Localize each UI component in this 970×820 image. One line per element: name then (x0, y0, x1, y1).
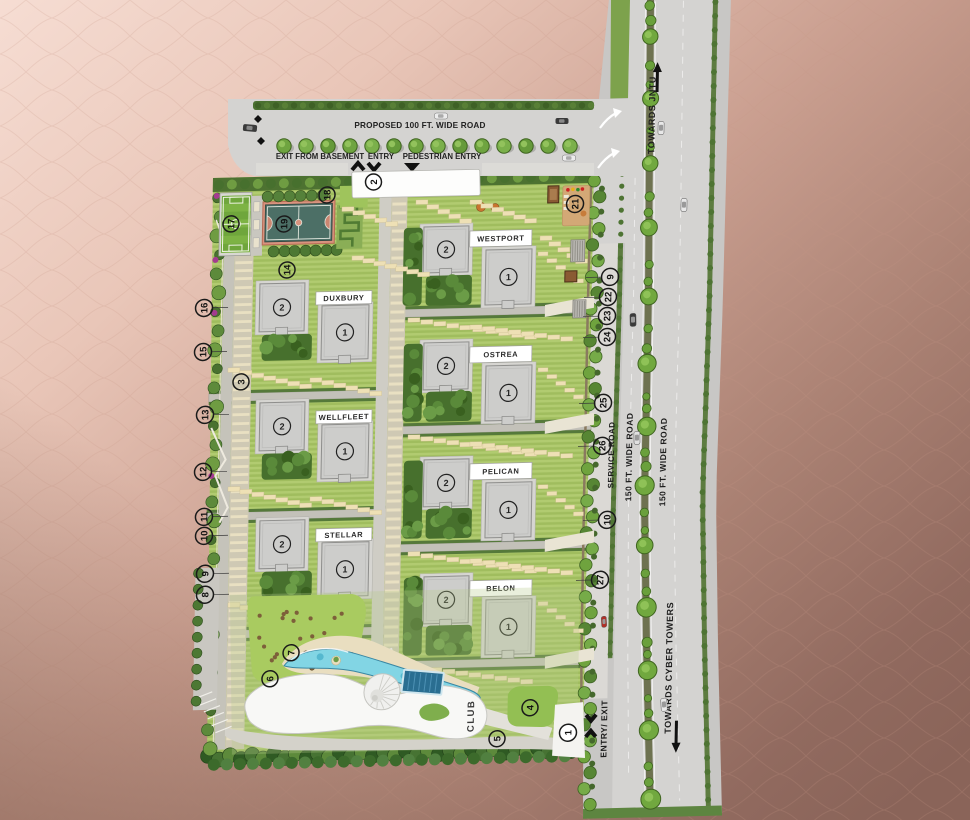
svg-text:WESTPORT: WESTPORT (477, 233, 524, 243)
svg-text:21: 21 (570, 198, 581, 210)
svg-text:1: 1 (506, 272, 511, 282)
svg-text:2: 2 (279, 303, 284, 313)
svg-text:10: 10 (602, 514, 613, 525)
svg-text:17: 17 (226, 218, 237, 229)
svg-text:2: 2 (369, 179, 380, 184)
svg-text:WELLFLEET: WELLFLEET (319, 412, 370, 422)
svg-text:10: 10 (199, 530, 210, 541)
svg-text:25: 25 (598, 397, 609, 409)
svg-text:23: 23 (602, 311, 613, 322)
svg-text:1: 1 (342, 446, 347, 456)
svg-text:EXIT FROM BASEMENT: EXIT FROM BASEMENT (276, 152, 365, 161)
svg-text:13: 13 (200, 409, 211, 420)
svg-text:18: 18 (322, 190, 333, 201)
svg-text:1: 1 (506, 505, 511, 515)
svg-text:14: 14 (282, 264, 293, 276)
svg-text:26: 26 (597, 440, 608, 451)
svg-text:STELLAR: STELLAR (324, 530, 363, 540)
svg-text:2: 2 (443, 478, 448, 488)
svg-text:PROPOSED 100 FT. WIDE ROAD: PROPOSED 100 FT. WIDE ROAD (354, 121, 485, 130)
svg-text:4: 4 (525, 704, 536, 710)
svg-text:24: 24 (602, 331, 613, 343)
svg-text:1: 1 (342, 327, 347, 337)
svg-text:ENTRY: ENTRY (368, 152, 395, 161)
svg-text:150 FT. WIDE ROAD: 150 FT. WIDE ROAD (657, 417, 669, 506)
svg-text:12: 12 (198, 466, 209, 477)
svg-text:OSTREA: OSTREA (483, 350, 518, 360)
svg-text:2: 2 (443, 361, 448, 371)
svg-text:SERVICE ROAD: SERVICE ROAD (606, 421, 616, 488)
svg-text:9: 9 (605, 274, 616, 280)
svg-text:PEDESTRIAN ENTRY: PEDESTRIAN ENTRY (403, 152, 482, 161)
svg-text:ENTRY/ EXIT: ENTRY/ EXIT (598, 700, 609, 758)
svg-text:1: 1 (563, 729, 574, 735)
svg-text:19: 19 (279, 219, 290, 230)
svg-text:2: 2 (279, 421, 284, 431)
svg-text:7: 7 (286, 650, 297, 656)
svg-text:22: 22 (603, 292, 614, 303)
svg-text:16: 16 (199, 303, 210, 314)
svg-text:2: 2 (279, 539, 284, 549)
svg-text:15: 15 (198, 346, 209, 358)
svg-text:PELICAN: PELICAN (482, 466, 519, 476)
svg-text:5: 5 (492, 735, 503, 741)
svg-text:3: 3 (236, 379, 247, 385)
svg-text:1: 1 (506, 388, 511, 398)
svg-text:8: 8 (200, 592, 211, 598)
svg-text:DUXBURY: DUXBURY (323, 293, 364, 303)
svg-text:6: 6 (265, 676, 276, 682)
svg-text:150 FT. WIDE ROAD: 150 FT. WIDE ROAD (623, 412, 635, 501)
svg-text:11: 11 (199, 511, 210, 522)
svg-text:2: 2 (443, 245, 448, 255)
svg-text:1: 1 (342, 564, 347, 574)
svg-text:CLUB: CLUB (466, 700, 478, 733)
svg-text:9: 9 (200, 571, 211, 577)
svg-text:27: 27 (595, 574, 606, 585)
